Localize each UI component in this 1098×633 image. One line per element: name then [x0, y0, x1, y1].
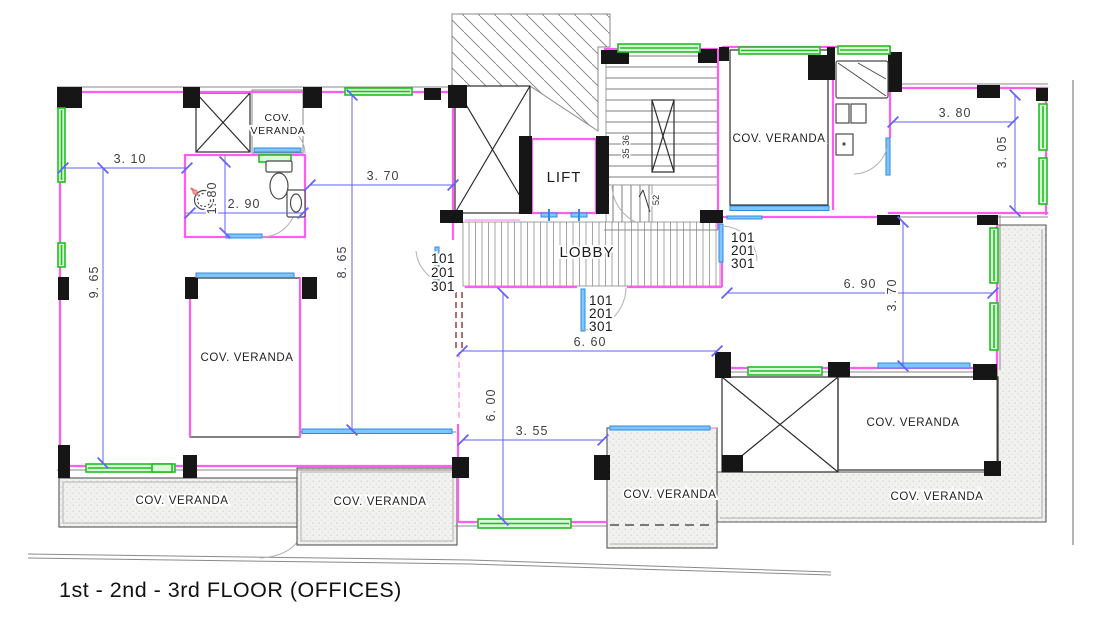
cov-veranda-label-bottom-1: COV. VERANDA — [135, 495, 228, 507]
floor-plan-drawing: 3. 10 3. 70 9. 65 8. 65 1. 80 2. 90 3. 8… — [0, 0, 1098, 633]
unit-301: 301 — [731, 256, 755, 271]
cov-veranda-label-small-2: VERANDA — [251, 125, 306, 137]
unit-stack-lobby-bottom: 101 201 301 — [589, 293, 613, 334]
cov-veranda-label-left: COV. VERANDA — [200, 352, 293, 364]
lobby-label: LOBBY — [559, 244, 614, 261]
lift-label: LIFT — [547, 169, 582, 186]
dim-3-55: 3. 55 — [516, 424, 549, 438]
dim-6-90: 6. 90 — [844, 277, 877, 291]
stair-count: 52 — [651, 195, 662, 206]
unit-stack-lobby-right: 101 201 301 — [731, 230, 755, 271]
cov-veranda-label-bottom-right: COV. VERANDA — [890, 491, 983, 503]
dim-8-65: 8. 65 — [335, 246, 349, 279]
dim-3-05: 3. 05 — [995, 136, 1009, 169]
unit-201: 201 — [431, 265, 455, 280]
veranda-bottom-middle — [607, 428, 717, 548]
unit-301: 301 — [431, 279, 455, 294]
dim-3-70-top: 3. 70 — [367, 169, 400, 183]
unit-101: 101 — [431, 251, 455, 266]
cov-veranda-label-top-right: COV. VERANDA — [732, 133, 825, 145]
cov-veranda-label-bottom-right-tiled: COV. VERANDA — [866, 417, 959, 429]
floor-plan-page: 3. 10 3. 70 9. 65 8. 65 1. 80 2. 90 3. 8… — [0, 0, 1098, 633]
dim-6-60: 6. 60 — [574, 335, 607, 349]
stair-riser-numbers: 35 36 — [621, 135, 632, 159]
dim-3-10: 3. 10 — [114, 152, 147, 166]
dim-9-65: 9. 65 — [87, 266, 101, 299]
unit-301: 301 — [589, 319, 613, 334]
dim-2-90: 2. 90 — [228, 197, 261, 211]
drawing-title: 1st - 2nd - 3rd FLOOR (OFFICES) — [59, 578, 402, 602]
dim-3-70-right: 3. 70 — [885, 279, 899, 312]
cov-veranda-label-bottom-2: COV. VERANDA — [333, 496, 426, 508]
wc-icon — [266, 161, 292, 172]
dim-1-80: 1. 80 — [205, 182, 219, 215]
dim-3-80: 3. 80 — [939, 106, 972, 120]
cov-veranda-label-bottom-middle: COV. VERANDA — [623, 489, 716, 501]
dim-6-00: 6. 00 — [484, 389, 498, 422]
unit-stack-lobby-left: 101 201 301 — [431, 251, 455, 294]
cov-veranda-label-small-1: COV. — [264, 112, 291, 124]
